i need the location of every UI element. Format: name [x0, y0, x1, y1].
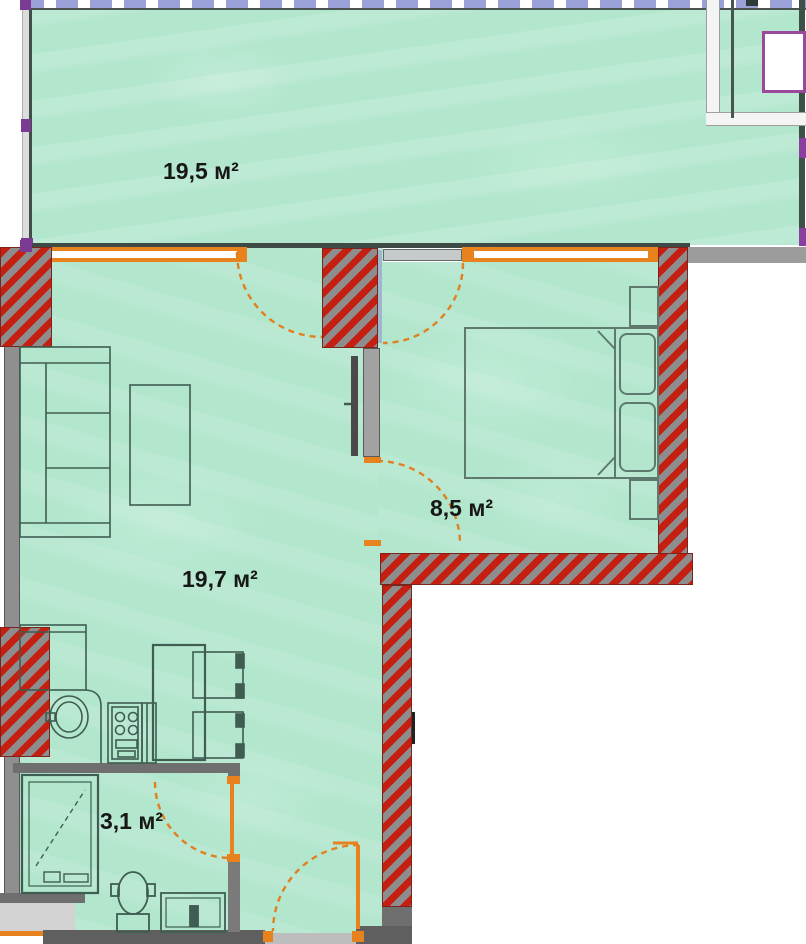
bedroom-terrace-door-arc: [383, 263, 463, 343]
pillow-2: [620, 403, 655, 471]
dining-chair-2: [193, 712, 244, 758]
entrance-door-arc: [273, 845, 359, 931]
nightstand-2: [630, 480, 658, 519]
room-label-living: 19,7 м²: [182, 566, 258, 593]
room-label-bathroom: 3,1 м²: [100, 808, 163, 835]
floor-plan: 19,5 м² 19,7 м² 8,5 м² 3,1 м²: [0, 0, 806, 944]
washbasin-cabinet: [161, 893, 225, 932]
room-label-bedroom: 8,5 м²: [430, 495, 493, 522]
nightstand-1: [630, 287, 658, 326]
room-label-terrace: 19,5 м²: [163, 158, 239, 185]
dining-chair-1: [193, 652, 244, 698]
sofa: [20, 347, 110, 537]
pillow-1: [620, 334, 655, 394]
kitchen-counter: [20, 625, 101, 763]
dining-table: [153, 645, 205, 760]
coffee-table: [130, 385, 190, 505]
bed: [465, 328, 658, 478]
tv: [344, 356, 358, 456]
shower: [22, 775, 98, 893]
bathroom-door-arc: [155, 782, 231, 858]
stove: [108, 703, 142, 763]
toilet: [111, 872, 155, 932]
furniture-layer: [0, 0, 806, 944]
living-balcony-door-arc: [237, 252, 322, 337]
